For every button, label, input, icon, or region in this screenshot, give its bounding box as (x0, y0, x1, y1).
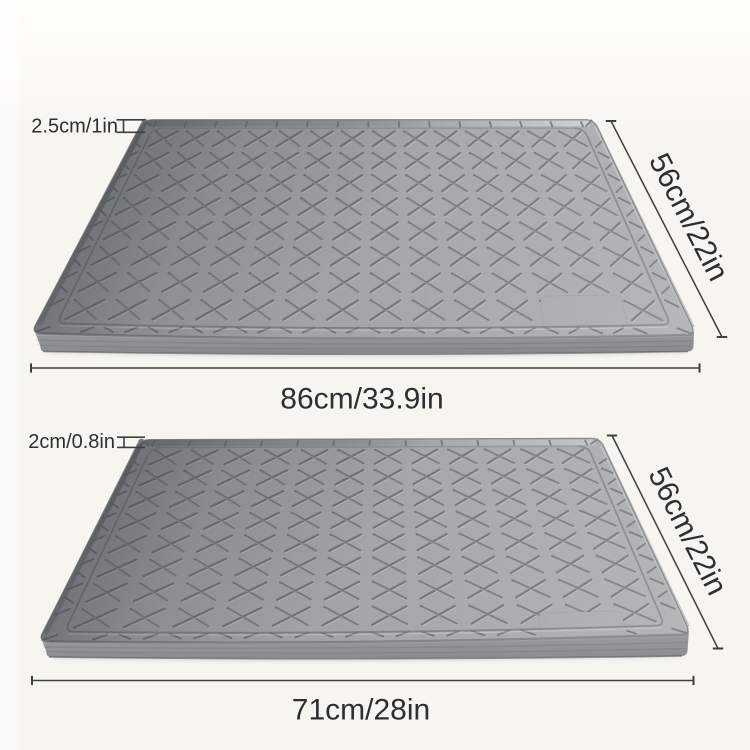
svg-text:71cm/28in: 71cm/28in (292, 694, 430, 727)
svg-text:2cm/0.8in: 2cm/0.8in (28, 431, 115, 453)
svg-text:86cm/33.9in: 86cm/33.9in (280, 383, 443, 416)
svg-text:2.5cm/1in: 2.5cm/1in (31, 116, 118, 138)
